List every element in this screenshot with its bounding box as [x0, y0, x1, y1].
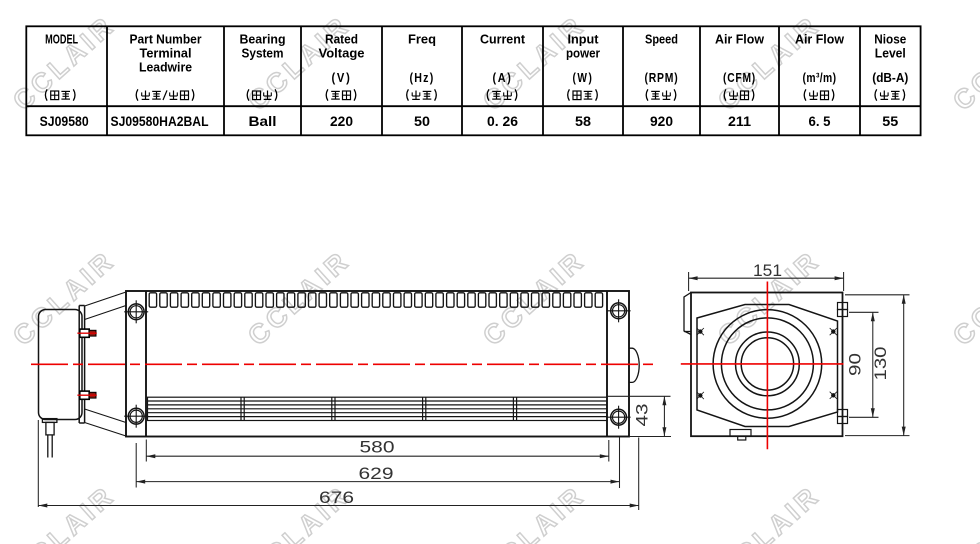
svg-text:CCLAIR: CCLAIR: [7, 480, 121, 544]
svg-text:Voltage: Voltage: [319, 46, 365, 61]
svg-text:Freq: Freq: [408, 32, 436, 47]
svg-text:Air Flow: Air Flow: [715, 32, 765, 47]
svg-text:Current: Current: [480, 32, 526, 47]
svg-text:151: 151: [753, 261, 782, 280]
svg-text:MODEL: MODEL: [45, 32, 78, 47]
svg-text:580: 580: [360, 438, 395, 457]
svg-text:6. 5: 6. 5: [809, 114, 831, 129]
svg-text:(Hz): (Hz): [410, 70, 435, 85]
svg-text:CCLAIR: CCLAIR: [242, 245, 356, 352]
svg-text:CCLAIR: CCLAIR: [947, 245, 980, 352]
svg-text:power: power: [566, 46, 600, 61]
svg-text:(A): (A): [493, 70, 513, 85]
svg-text:Terminal: Terminal: [140, 46, 192, 61]
svg-text:CCLAIR: CCLAIR: [712, 480, 826, 544]
svg-text:CCLAIR: CCLAIR: [947, 480, 980, 544]
svg-text:920: 920: [650, 114, 673, 129]
svg-text:SJ09580HA2BAL: SJ09580HA2BAL: [111, 114, 209, 129]
svg-text:Level: Level: [875, 46, 906, 61]
svg-text:676: 676: [319, 488, 354, 507]
svg-text:(m³/m): (m³/m): [803, 70, 837, 85]
svg-text:CCLAIR: CCLAIR: [947, 10, 980, 117]
svg-text:211: 211: [728, 114, 752, 129]
svg-text:SJ09580: SJ09580: [40, 114, 89, 129]
svg-text:CCLAIR: CCLAIR: [477, 480, 591, 544]
svg-text:(W): (W): [573, 70, 594, 85]
svg-text:Ball: Ball: [249, 114, 277, 129]
svg-text:Input: Input: [568, 32, 600, 47]
svg-text:Speed: Speed: [645, 32, 678, 47]
svg-text:(CFM): (CFM): [723, 70, 756, 85]
svg-text:(V): (V): [332, 70, 352, 85]
svg-text:CCLAIR: CCLAIR: [7, 245, 121, 352]
svg-text:(RPM): (RPM): [645, 70, 679, 85]
svg-text:58: 58: [575, 114, 592, 129]
svg-text:System: System: [242, 46, 284, 61]
svg-text:0. 26: 0. 26: [487, 114, 519, 129]
svg-text:55: 55: [882, 114, 899, 129]
svg-text:50: 50: [414, 114, 430, 129]
svg-text:43: 43: [633, 404, 652, 427]
svg-text:Air Flow: Air Flow: [795, 32, 845, 47]
svg-text:90: 90: [846, 353, 865, 376]
svg-text:Leadwire: Leadwire: [139, 60, 192, 75]
svg-text:Bearing: Bearing: [240, 32, 286, 47]
svg-text:Rated: Rated: [325, 32, 358, 47]
svg-text:629: 629: [359, 464, 394, 483]
svg-text:(dB-A): (dB-A): [872, 70, 908, 85]
svg-text:130: 130: [871, 347, 890, 381]
svg-text:Niose: Niose: [874, 32, 906, 47]
svg-text:Part Number: Part Number: [130, 32, 202, 47]
svg-text:220: 220: [330, 114, 353, 129]
